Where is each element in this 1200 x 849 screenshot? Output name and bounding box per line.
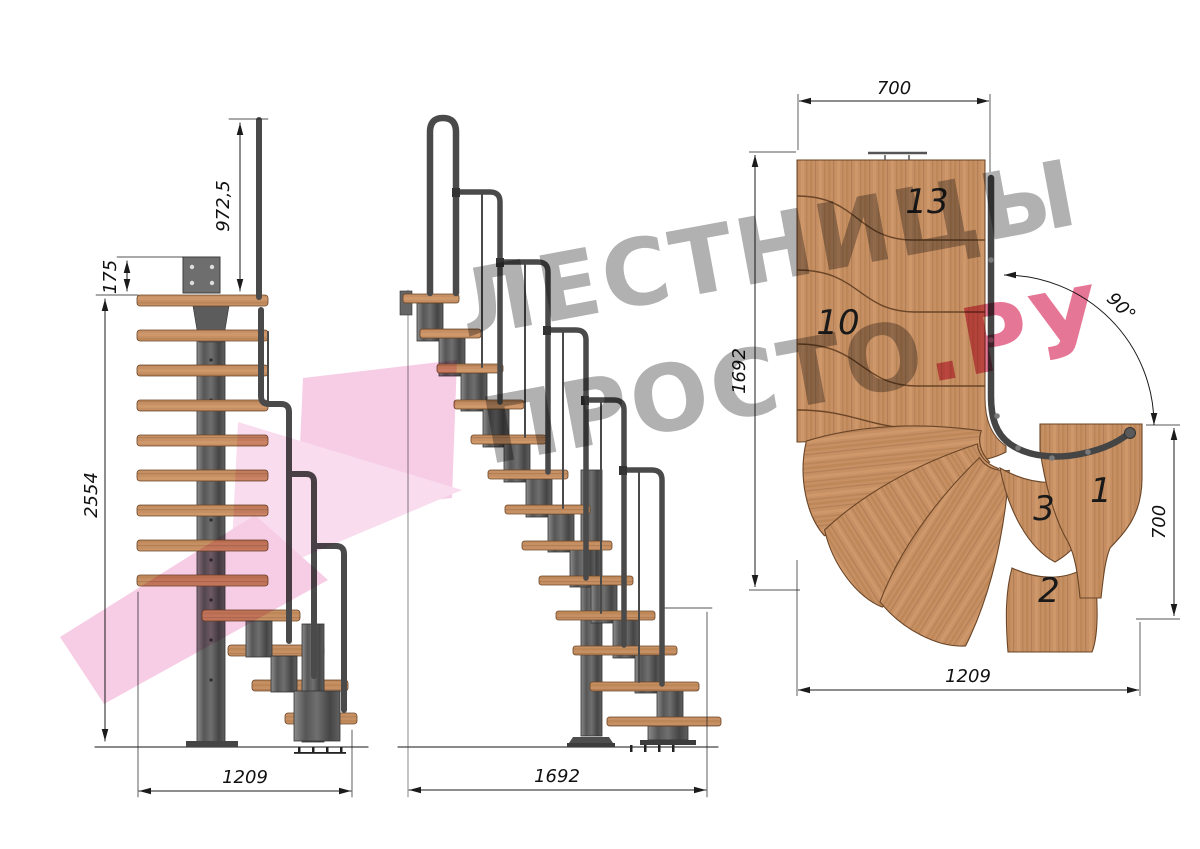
watermark-line2-accent: .РУ: [915, 265, 1114, 403]
stair-technical-drawing: 972,5 175 2554 1209: [0, 0, 1200, 849]
